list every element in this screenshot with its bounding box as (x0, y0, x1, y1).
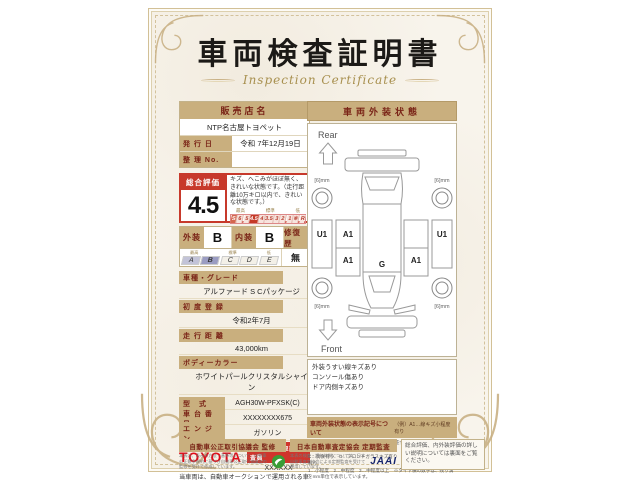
spec-value: 43,000km (179, 342, 310, 355)
jaai-audit-title: 日本自動車査定協会 定期監査 (290, 439, 397, 452)
damage-marker-a1-left-1: A1 (343, 230, 354, 239)
grade-scale: 最高 標準 低 A B C D E (180, 249, 281, 266)
rating-label: 総合評価 (181, 175, 225, 190)
grade-cell: E (259, 256, 280, 265)
damage-marker-a1-right: A1 (411, 256, 422, 265)
legend-example: （例）A1…線キズ小程度有り (394, 421, 454, 435)
grade-cell: C (220, 256, 241, 265)
see-reverse-side-box: 総合評価、内外装評価の詳しい説明については裏面をご覧ください。 (401, 439, 485, 470)
repair-history-label: 修復歴 (284, 227, 309, 248)
rating-score-cell: 総合評価 4.5 (181, 175, 227, 221)
grade-cell: A (181, 256, 202, 265)
grades-box: 外装 B 内装 B 修復歴 最高 標準 低 A (179, 226, 310, 267)
certificate-page: 車両検査証明書 Inspection Certificate 販売店名 NTP名… (0, 0, 640, 480)
grades-row: 外装 B 内装 B 修復歴 (179, 226, 310, 249)
reference-no-row: 整 理 No. (180, 152, 309, 167)
repair-history-value: 無 (281, 249, 309, 266)
spec-row-model-grade: 車種・グレード アルファード S Cパッケージ (179, 271, 310, 299)
legend-header: 車両外装状態の表示記号について （例）A1…線キズ小程度有り (307, 417, 457, 438)
fair-trade-council-body: 本表は、表示の方法・基準等について、自動車公正競争規約に基づき自動車公正取引協議… (179, 452, 286, 470)
damage-note: コンソール傷あり (312, 373, 452, 383)
tire-tread-front-right: [6]mm (434, 304, 450, 310)
jaai-audit-body: 本表の検査・評価体制については、日本自動車査定協会による定期監査を受けて運用して… (290, 452, 397, 470)
rating-comment: キズ、へこみがほぼ無く、きれいな状態です。（走行距離10万キロ以内で、きれいな状… (230, 177, 306, 208)
front-direction-label: Front (321, 344, 343, 354)
rating-score: 4.5 (181, 190, 225, 221)
grade-cell: D (239, 256, 260, 265)
reference-no-value (232, 152, 309, 167)
spec-label: 走 行 距 離 (179, 329, 283, 342)
spec-row-mileage: 走 行 距 離 43,000km (179, 329, 310, 355)
issue-date-label: 発 行 日 (180, 136, 232, 151)
fair-trade-council-logo-icon (271, 454, 286, 469)
spec-value: AGH30W-PFXSK(C) (225, 398, 310, 410)
certificate-subtitle-row: Inspection Certificate (149, 73, 491, 87)
damage-marker-a1-left-2: A1 (343, 256, 354, 265)
tire-tread-rear-left: [6]mm (314, 178, 330, 184)
fair-trade-council-title: 自動車公正取引協議会 監修 (179, 439, 286, 452)
spec-value: XXXXXXXX675 (225, 413, 310, 425)
damage-note: ドア内側キズあり (312, 383, 452, 393)
grade-scale-row: 最高 標準 低 A B C D E 無 (179, 249, 310, 267)
jaai-audit-text: 本表の検査・評価体制については、日本自動車査定協会による定期監査を受けて運用して… (290, 453, 368, 470)
damage-marker-u1-right: U1 (437, 230, 448, 239)
certificate-subtitle: Inspection Certificate (243, 73, 397, 87)
scale-cell: R (299, 215, 306, 223)
legend-title: 車両外装状態の表示記号について (310, 419, 391, 437)
damage-marker-g-center: G (379, 260, 385, 269)
inspection-footnote: 当車両は、自動車オークションで運用される車両評価基準に沿い、トヨタユーゼックが認… (179, 474, 310, 480)
subtitle-flourish (201, 79, 235, 82)
subtitle-flourish (405, 79, 439, 82)
rating-detail-cell: キズ、へこみがほぼ無く、きれいな状態です。（走行距離10万キロ以内で、きれいな状… (227, 175, 308, 221)
spec-label: 車種・グレード (179, 271, 283, 284)
tire-tread-front-left: [6]mm (314, 304, 330, 310)
interior-grade-value: B (256, 227, 284, 248)
damage-notes-box: 外装うすい線キズあり コンソール傷あり ドア内側キズあり (307, 359, 457, 415)
fair-trade-council-box: 自動車公正取引協議会 監修 本表は、表示の方法・基準等について、自動車公正競争規… (179, 439, 286, 470)
spec-label: 初 度 登 録 (179, 300, 283, 313)
jaai-logo: JAAI (370, 456, 397, 467)
car-top-view-diagram: Rear Front [6]mm [6]mm [6]mm [6]mm U1 A1… (308, 124, 456, 356)
vehicle-specs: 車種・グレード アルファード S Cパッケージ 初 度 登 録 令和2年7月 走… (179, 271, 310, 441)
dealer-header: 販売店名 (180, 102, 309, 119)
tire-tread-rear-right: [6]mm (434, 178, 450, 184)
exterior-grade-value: B (204, 227, 232, 248)
exterior-grade-label: 外装 (180, 227, 204, 248)
spec-value: 令和2年7月 (179, 313, 310, 328)
exterior-condition-header: 車両外装状態 (307, 101, 457, 121)
rear-direction-label: Rear (318, 130, 338, 140)
damage-marker-u1-left: U1 (317, 230, 328, 239)
certificate-title: 車両検査証明書 (149, 29, 491, 73)
reference-no-label: 整 理 No. (180, 152, 232, 167)
car-diagram-box: Rear Front [6]mm [6]mm [6]mm [6]mm U1 A1… (307, 123, 457, 357)
dealer-name: NTP名古屋トヨペット (180, 119, 309, 136)
grade-cell-selected: B (200, 256, 221, 265)
certification-strip: 自動車公正取引協議会 監修 本表は、表示の方法・基準等について、自動車公正競争規… (179, 439, 485, 470)
spec-value: ホワイトパールクリスタルシャイン (179, 369, 310, 395)
fair-trade-council-text: 本表は、表示の方法・基準等について、自動車公正競争規約に基づき自動車公正取引協議… (179, 453, 269, 470)
spec-row-first-registration: 初 度 登 録 令和2年7月 (179, 300, 310, 328)
issue-date-value: 令和 7年12月19日 (232, 136, 309, 151)
spec-value: アルファード S Cパッケージ (179, 284, 310, 299)
dealer-box: 販売店名 NTP名古屋トヨペット 発 行 日 令和 7年12月19日 整 理 N… (179, 101, 310, 168)
rating-scale: S 6 5 4.5 4 3.5 3 2 1 ※ R (230, 214, 306, 224)
damage-note: 外装うすい線キズあり (312, 363, 452, 373)
certificate-paper: 車両検査証明書 Inspection Certificate 販売店名 NTP名… (148, 8, 492, 472)
grade-scale-cells: A B C D E (182, 256, 279, 265)
issue-date-row: 発 行 日 令和 7年12月19日 (180, 136, 309, 152)
left-panel: 販売店名 NTP名古屋トヨペット 発 行 日 令和 7年12月19日 整 理 N… (179, 101, 310, 480)
see-reverse-side-text: 総合評価、内外装評価の詳しい説明については裏面をご覧ください。 (405, 443, 481, 466)
spec-row-body-color: ボディーカラー ホワイトパールクリスタルシャイン (179, 356, 310, 395)
right-panel: 車両外装状態 (307, 101, 457, 480)
overall-rating-box: 総合評価 4.5 キズ、へこみがほぼ無く、きれいな状態です。（走行距離10万キロ… (179, 173, 310, 223)
interior-grade-label: 内装 (232, 227, 256, 248)
jaai-audit-box: 日本自動車査定協会 定期監査 本表の検査・評価体制については、日本自動車査定協会… (290, 439, 397, 470)
spec-label: ボディーカラー (179, 356, 283, 369)
